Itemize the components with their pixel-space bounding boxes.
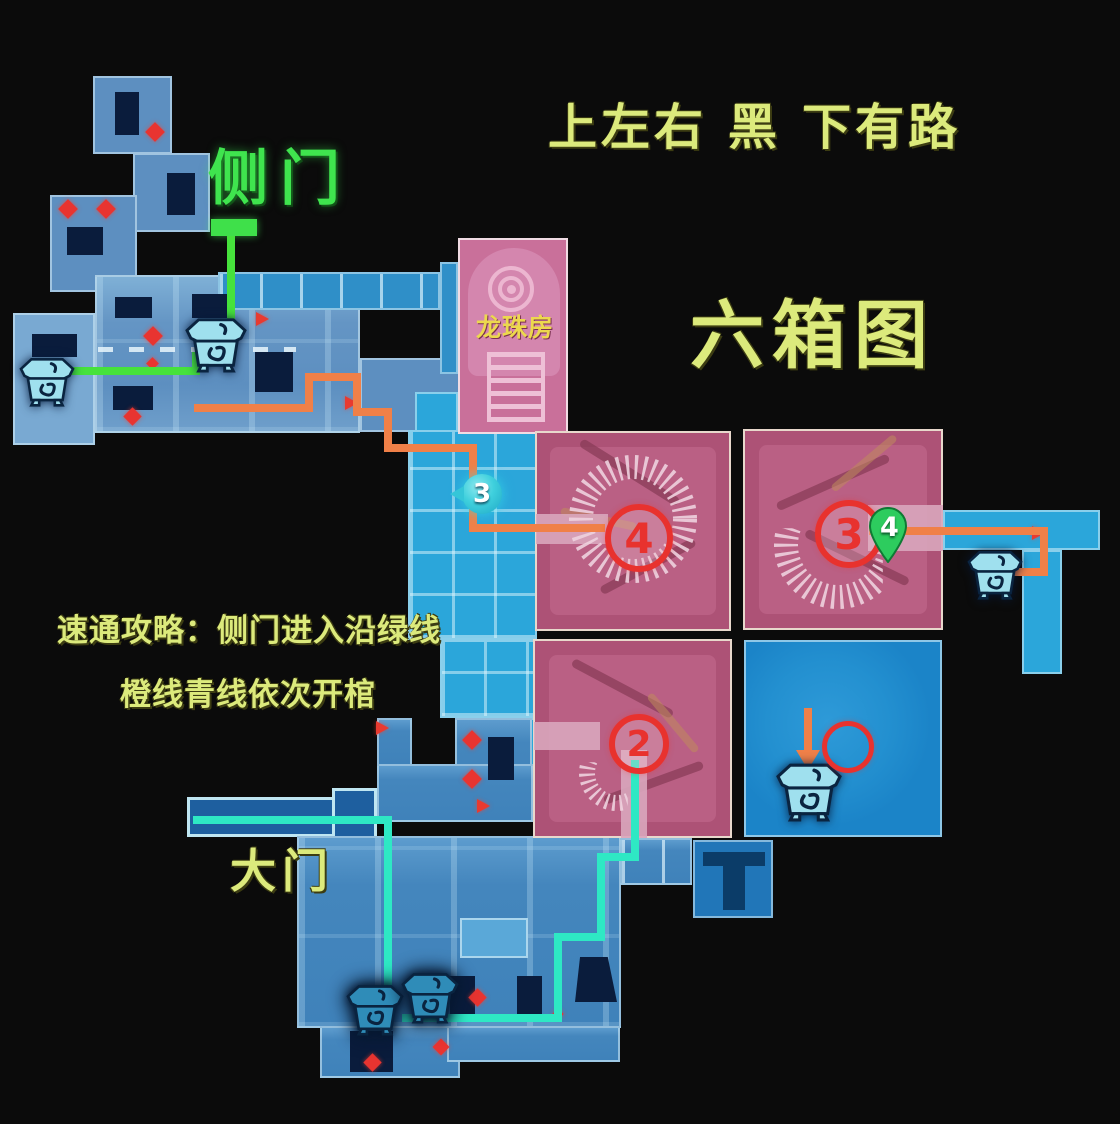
chest-icon [774,760,844,822]
passage-band [536,514,608,544]
dragon-room-label: 龙珠房 [476,308,554,344]
red-flag-marker [477,799,490,813]
spiral-target-icon [488,266,534,312]
red-step-3-number: 3 [834,510,863,559]
map-canvas: 3 4 3 2 4 侧门 上左右 黑 下有路 六箱图 龙珠房 速通攻略：侧门进入… [0,0,1120,1124]
top-hint-label: 上左右 黑 下有路 [548,88,961,159]
floor-hole [167,173,195,215]
floor-hole [113,386,153,410]
floor-hole [115,92,139,135]
chest-icon [345,982,405,1036]
chest-icon [18,355,76,407]
chest-icon [966,548,1024,600]
red-step-4-number: 4 [624,514,653,563]
corridor [1022,550,1062,674]
red-flag-marker [256,312,269,326]
floor-hole [517,976,542,1017]
chest-icon [183,315,249,373]
main-gate-label: 大门 [230,835,334,901]
corridor [620,838,692,885]
red-flag-marker [376,721,389,735]
floor-hole [67,227,103,255]
side-door-label: 侧门 [208,130,352,217]
red-step-2-number: 2 [626,724,651,765]
red-flag-marker [345,396,358,410]
chest-icon [400,970,460,1024]
red-step-4-circle: 4 [605,504,673,572]
map-title: 六箱图 [690,276,936,383]
corridor [440,262,458,374]
floor-hole [488,737,514,780]
floor-hole [115,297,152,318]
stairs-icon [487,352,545,422]
red-empty-circle [822,721,874,773]
gate-corridor [187,797,339,837]
gate-corridor [332,788,377,840]
cyan-step-number: 3 [473,479,491,509]
corridor [415,392,458,432]
green-pin-number: 4 [880,512,899,543]
cyan-step-marker: 3 [462,474,502,514]
room-rect [460,918,528,958]
room-texture [703,852,765,866]
side-door-marker [211,219,257,236]
corridor-grid [440,640,537,718]
room-texture [723,866,745,910]
red-flag-marker [1032,526,1045,540]
guide-text-line2: 橙线青线依次开棺 [120,669,376,714]
corridor [218,272,440,310]
guide-text-line1: 速通攻略：侧门进入沿绿线 [57,605,441,650]
floor-hole [255,352,293,392]
passage-band [534,722,600,750]
corridor [943,510,1100,550]
floor-hole [32,334,77,357]
room-rect [447,1026,620,1062]
red-step-2-circle: 2 [609,714,669,774]
